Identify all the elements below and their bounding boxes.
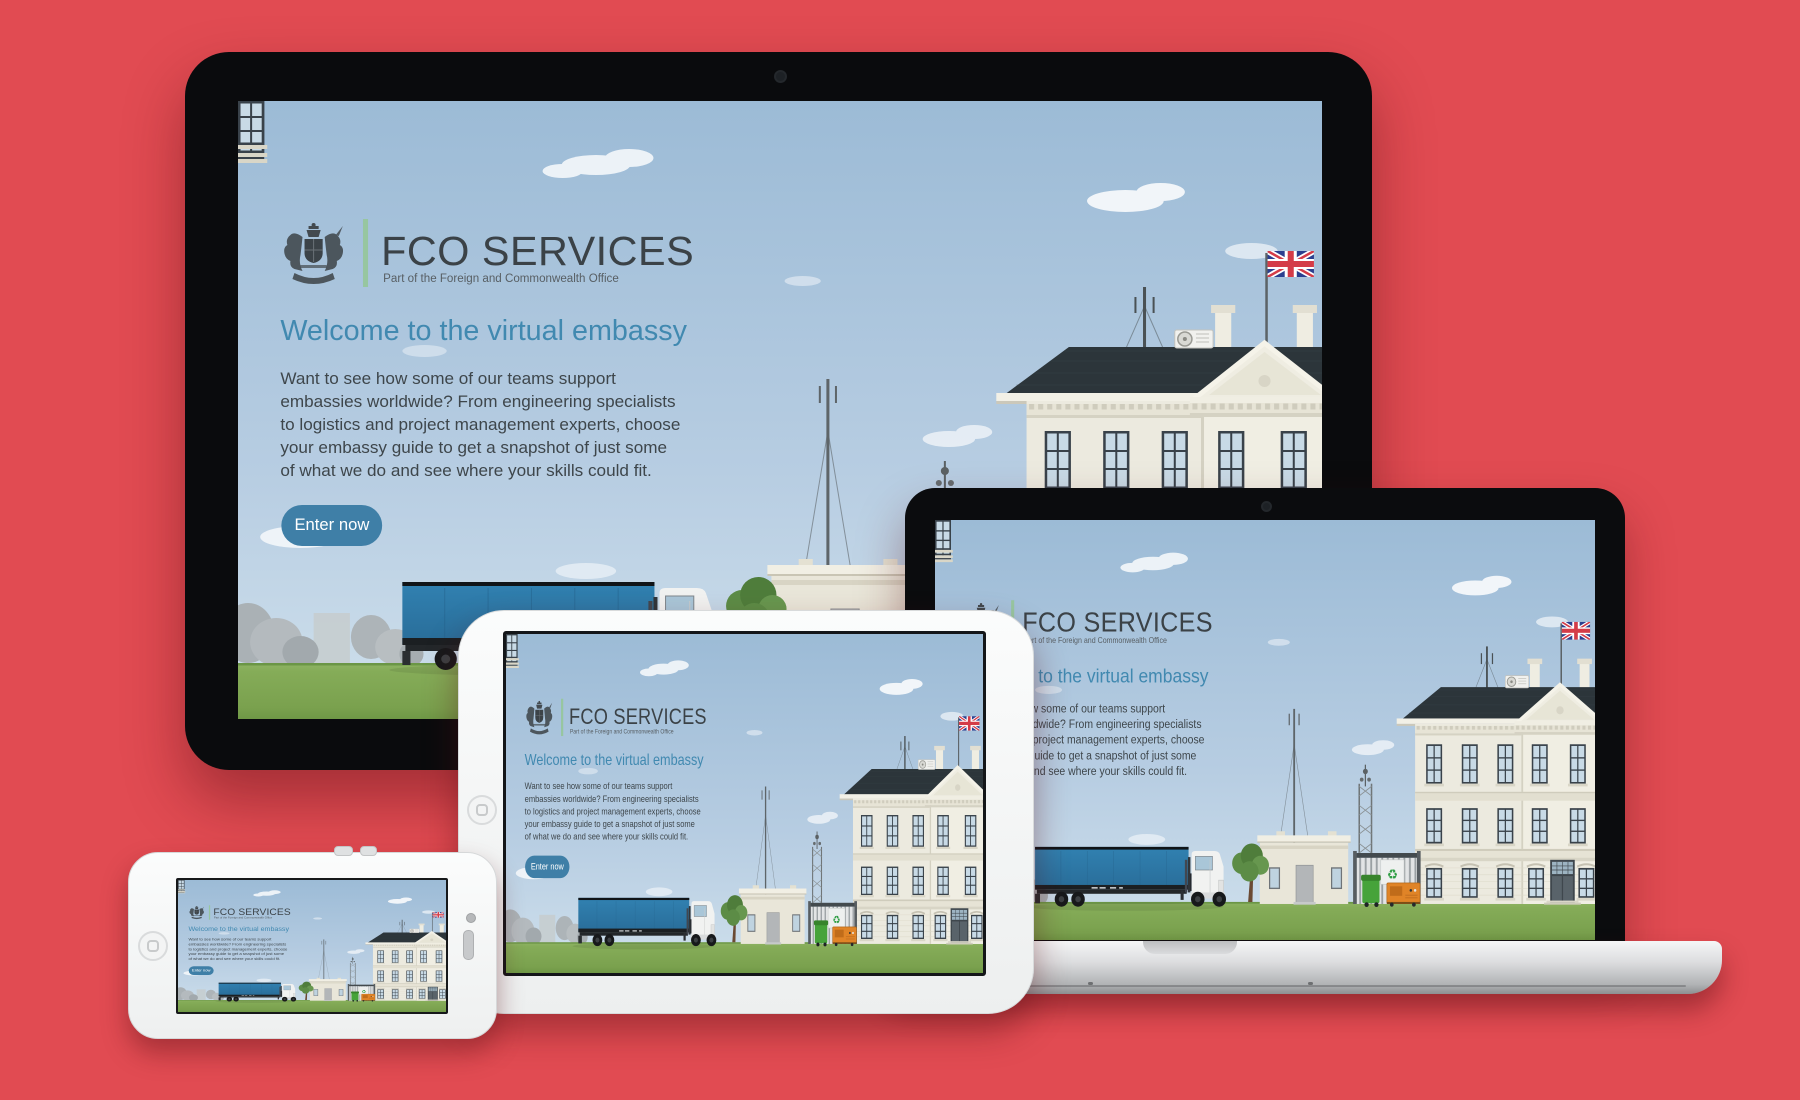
tablet: FCO SERVICES Part of the Foreign and Com… xyxy=(458,610,1034,1014)
port-dot xyxy=(1088,982,1093,985)
intro-paragraph: Want to see how some of our teams suppor… xyxy=(188,937,287,962)
enter-now-button[interactable]: Enter now xyxy=(189,966,214,975)
phone-screen: FCO SERVICES Part of the Foreign and Com… xyxy=(176,878,448,1014)
responsive-device-mockup: FCO SERVICES Part of the Foreign and Com… xyxy=(0,0,1800,1100)
page-title: Welcome to the virtual embassy xyxy=(188,926,289,933)
home-button xyxy=(138,931,168,961)
laptop-screen: FCO SERVICES Part of the Foreign and Com… xyxy=(935,520,1595,940)
webpage-content: FCO SERVICES Part of the Foreign and Com… xyxy=(935,520,1595,940)
page-title: Welcome to the virtual embassy xyxy=(525,751,704,769)
tablet-screen: FCO SERVICES Part of the Foreign and Com… xyxy=(503,631,986,976)
royal-coat-of-arms-icon xyxy=(188,906,204,921)
volume-button xyxy=(334,846,353,856)
brand-tagline: Part of the Foreign and Commonwealth Off… xyxy=(1023,637,1167,645)
brand-tagline: Part of the Foreign and Commonwealth Off… xyxy=(214,917,272,920)
brand-tagline: Part of the Foreign and Commonwealth Off… xyxy=(570,728,674,735)
home-button xyxy=(467,795,497,825)
webpage-content: FCO SERVICES Part of the Foreign and Com… xyxy=(506,634,983,973)
volume-button xyxy=(360,846,377,856)
brand-name: FCO SERVICES xyxy=(213,907,290,917)
royal-coat-of-arms-icon xyxy=(525,700,554,738)
logo-divider xyxy=(363,219,368,287)
intro-paragraph: Want to see how some of our teams suppor… xyxy=(280,367,681,483)
webpage-content: FCO SERVICES Part of the Foreign and Com… xyxy=(178,880,446,1012)
brand-name: FCO SERVICES xyxy=(381,228,694,275)
intro-paragraph: Want to see how some of our teams suppor… xyxy=(525,780,702,843)
webcam-dot-icon xyxy=(774,70,787,83)
logo-divider xyxy=(561,699,563,736)
front-camera-icon xyxy=(466,913,476,923)
enter-now-button[interactable]: Enter now xyxy=(281,505,382,546)
brand-name: FCO SERVICES xyxy=(1022,606,1213,638)
royal-coat-of-arms-icon xyxy=(280,221,347,291)
webcam-dot-icon xyxy=(1261,501,1272,512)
enter-now-button[interactable]: Enter now xyxy=(525,856,570,878)
smartphone: FCO SERVICES Part of the Foreign and Com… xyxy=(128,852,497,1039)
earpiece-speaker xyxy=(463,930,474,960)
thumb-scoop-notch xyxy=(1143,941,1237,954)
logo-divider xyxy=(209,905,210,920)
brand-tagline: Part of the Foreign and Commonwealth Off… xyxy=(383,273,619,285)
port-dot xyxy=(1308,982,1313,985)
page-title: Welcome to the virtual embassy xyxy=(280,315,687,348)
brand-name: FCO SERVICES xyxy=(569,704,707,730)
